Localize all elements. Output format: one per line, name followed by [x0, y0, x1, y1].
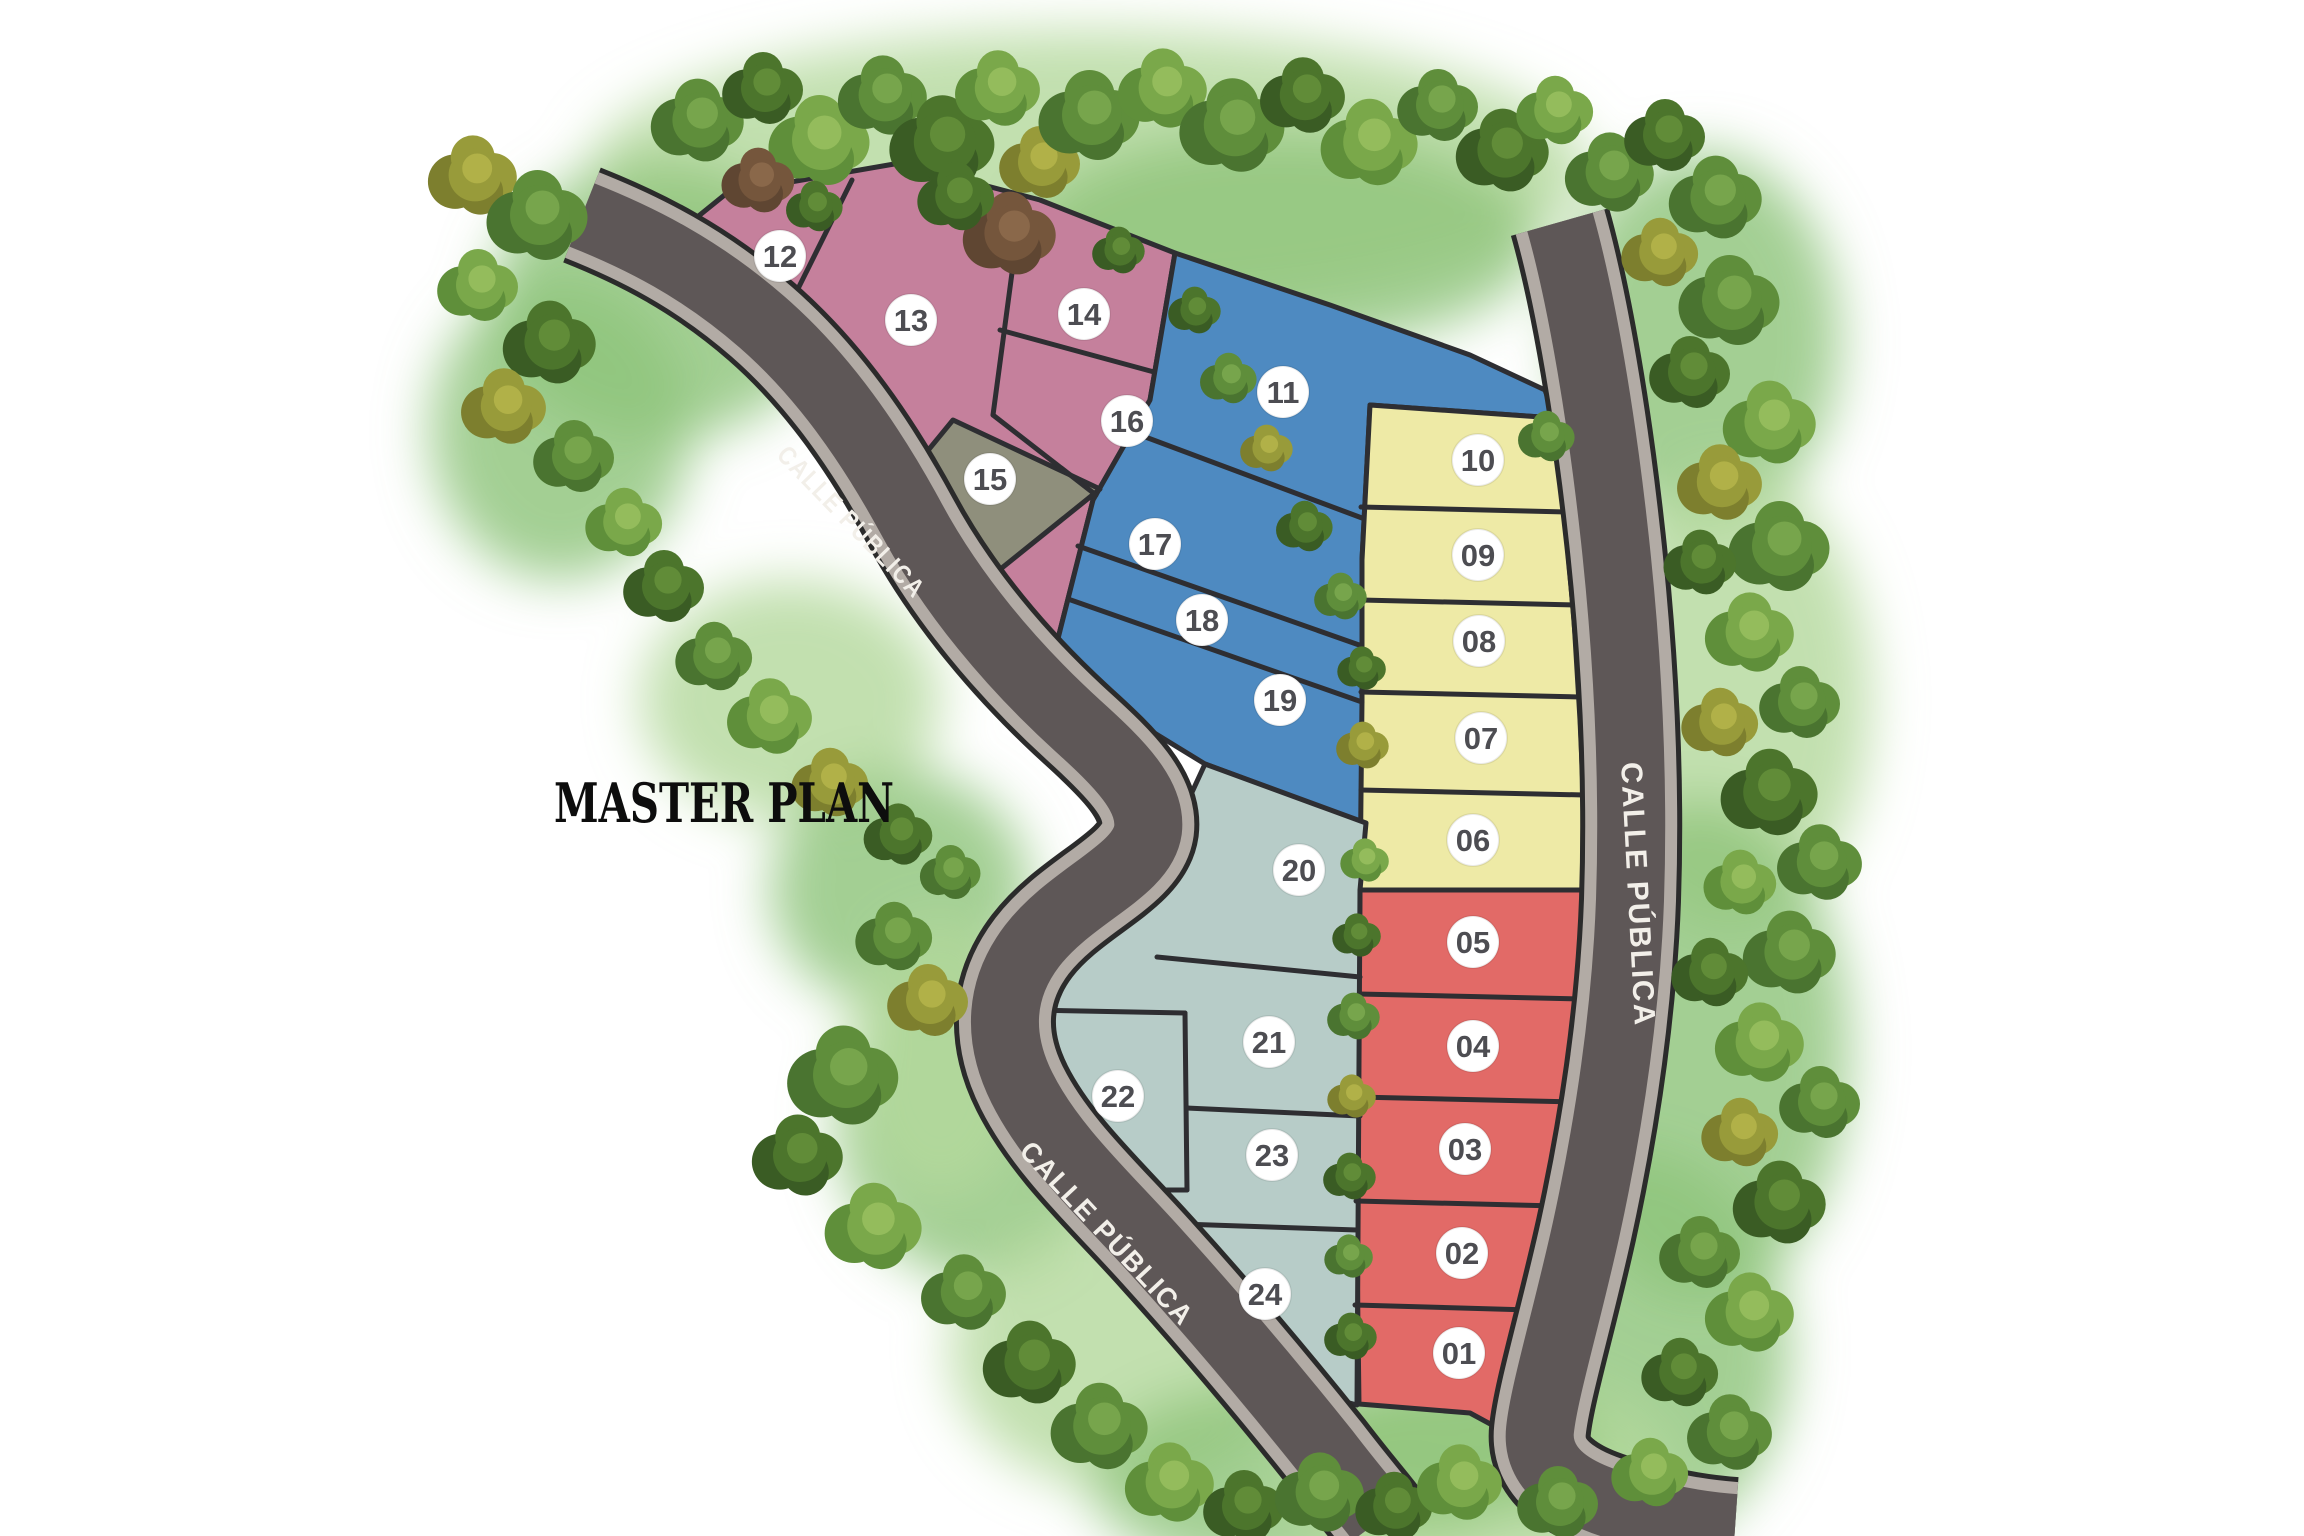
tree-foliage — [1220, 100, 1255, 135]
tree-foliage — [705, 637, 731, 663]
tree-foliage — [1540, 422, 1559, 441]
tree-foliage — [1152, 66, 1182, 96]
tree-foliage — [830, 1048, 867, 1085]
tree-foliage — [885, 917, 911, 943]
tree-foliage — [947, 177, 973, 203]
tree-foliage — [1671, 1353, 1697, 1379]
tree-foliage — [1358, 118, 1391, 151]
tree-foliage — [918, 980, 945, 1007]
tree-foliage — [526, 191, 560, 225]
tree-foliage — [687, 97, 718, 128]
lot-divider — [1185, 1013, 1187, 1190]
tree-foliage — [750, 162, 774, 186]
tree-foliage — [1222, 364, 1241, 383]
tree-foliage — [654, 566, 681, 593]
tree-foliage — [1188, 297, 1206, 315]
tree-foliage — [1651, 233, 1677, 259]
tree-foliage — [1347, 1003, 1365, 1021]
tree-foliage — [988, 67, 1017, 96]
lot-14-number: 14 — [1067, 297, 1102, 332]
tree-foliage — [753, 68, 780, 95]
tree-foliage — [1641, 1453, 1667, 1479]
tree-foliage — [1088, 1402, 1121, 1435]
tree-foliage — [1260, 435, 1278, 453]
tree-foliage — [1705, 174, 1736, 205]
tree-foliage — [1711, 703, 1737, 729]
master-plan-map: CALLE PÚBLICACALLE PÚBLICACALLE PÚBLICA0… — [0, 0, 2304, 1536]
tree-foliage — [539, 319, 570, 350]
tree-foliage — [1759, 399, 1790, 430]
tree-foliage — [1790, 682, 1817, 709]
tree-foliage — [1428, 85, 1455, 112]
tree-foliage — [930, 117, 965, 152]
lot-06-number: 06 — [1456, 823, 1490, 858]
tree-foliage — [564, 436, 591, 463]
tree-foliage — [1343, 1244, 1359, 1260]
tree-foliage — [1768, 522, 1802, 556]
tree-foliage — [1718, 276, 1752, 310]
tree-foliage — [1112, 237, 1130, 255]
tree-foliage — [1731, 1113, 1757, 1139]
tree-foliage — [1234, 1486, 1261, 1513]
tree-foliage — [1293, 74, 1322, 103]
tree-foliage — [468, 265, 495, 292]
tree-foliage — [1690, 1232, 1717, 1259]
tree-foliage — [1732, 864, 1756, 888]
lot-16-number: 16 — [1110, 404, 1144, 439]
lot-13-number: 13 — [894, 303, 928, 338]
tree-foliage — [1655, 115, 1682, 142]
lot-22-number: 22 — [1101, 1079, 1135, 1114]
tree-foliage — [1692, 544, 1716, 568]
lot-23-number: 23 — [1255, 1138, 1289, 1173]
tree-foliage — [462, 153, 492, 183]
lot-24-number: 24 — [1248, 1277, 1283, 1312]
lot-19-number: 19 — [1263, 683, 1297, 718]
tree-foliage — [1810, 841, 1839, 870]
page-title: MASTER PLAN — [554, 771, 894, 835]
tree-foliage — [954, 1271, 983, 1300]
lot-11-number: 11 — [1267, 375, 1300, 410]
lot-02-number: 02 — [1445, 1236, 1479, 1271]
tree-foliage — [1356, 732, 1374, 750]
tree-foliage — [1739, 610, 1769, 640]
tree-foliage — [1739, 1290, 1769, 1320]
tree-foliage — [1548, 1482, 1575, 1509]
lot-15-number: 15 — [973, 462, 1007, 497]
lot-08-number: 08 — [1462, 624, 1496, 659]
lot-17-number: 17 — [1138, 527, 1172, 562]
lot-04-number: 04 — [1456, 1029, 1491, 1064]
tree-foliage — [1019, 1339, 1050, 1370]
tree-foliage — [1701, 953, 1727, 979]
tree-foliage — [1078, 91, 1112, 125]
tree-foliage — [760, 695, 789, 724]
tree-foliage — [1344, 1323, 1362, 1341]
lot-12-number: 12 — [763, 239, 797, 274]
tree-foliage — [1492, 127, 1523, 158]
tree-foliage — [1450, 1461, 1479, 1490]
lot-21-number: 21 — [1252, 1025, 1286, 1060]
lot-05-number: 05 — [1456, 925, 1490, 960]
lot-10-number: 10 — [1461, 443, 1495, 478]
tree-foliage — [1680, 352, 1707, 379]
tree-foliage — [1346, 1084, 1362, 1100]
tree-foliage — [1749, 1020, 1779, 1050]
lot-03-number: 03 — [1448, 1132, 1482, 1167]
tree-foliage — [1769, 1179, 1800, 1210]
lot-09-number: 09 — [1461, 538, 1495, 573]
tree-foliage — [1720, 1411, 1749, 1440]
tree-foliage — [1343, 1163, 1361, 1181]
tree-foliage — [1159, 1460, 1189, 1490]
tree-foliage — [999, 210, 1030, 241]
lot-20-number: 20 — [1282, 853, 1316, 888]
tree-foliage — [1758, 768, 1791, 801]
tree-foliage — [1710, 461, 1739, 490]
master-plan-page: CALLE PÚBLICACALLE PÚBLICACALLE PÚBLICA0… — [0, 0, 2304, 1536]
tree-foliage — [943, 857, 963, 877]
tree-foliage — [1385, 1487, 1411, 1513]
tree-foliage — [862, 1202, 895, 1235]
tree-foliage — [1810, 1082, 1837, 1109]
tree-foliage — [1356, 656, 1372, 672]
tree-foliage — [1351, 923, 1367, 939]
tree-foliage — [1599, 150, 1629, 180]
tree-foliage — [808, 116, 842, 150]
tree-foliage — [1334, 583, 1352, 601]
tree-foliage — [1309, 1470, 1339, 1500]
lot-18-number: 18 — [1185, 603, 1219, 638]
tree-foliage — [1546, 91, 1572, 117]
tree-foliage — [1298, 512, 1317, 531]
tree-foliage — [787, 1133, 818, 1164]
tree-foliage — [808, 192, 827, 211]
tree-foliage — [615, 503, 641, 529]
tree-foliage — [1779, 929, 1810, 960]
tree-foliage — [1359, 848, 1375, 864]
tree-foliage — [872, 73, 902, 103]
lot-01-number: 01 — [1442, 1336, 1476, 1371]
lot-07-number: 07 — [1464, 721, 1498, 756]
tree-foliage — [494, 385, 523, 414]
